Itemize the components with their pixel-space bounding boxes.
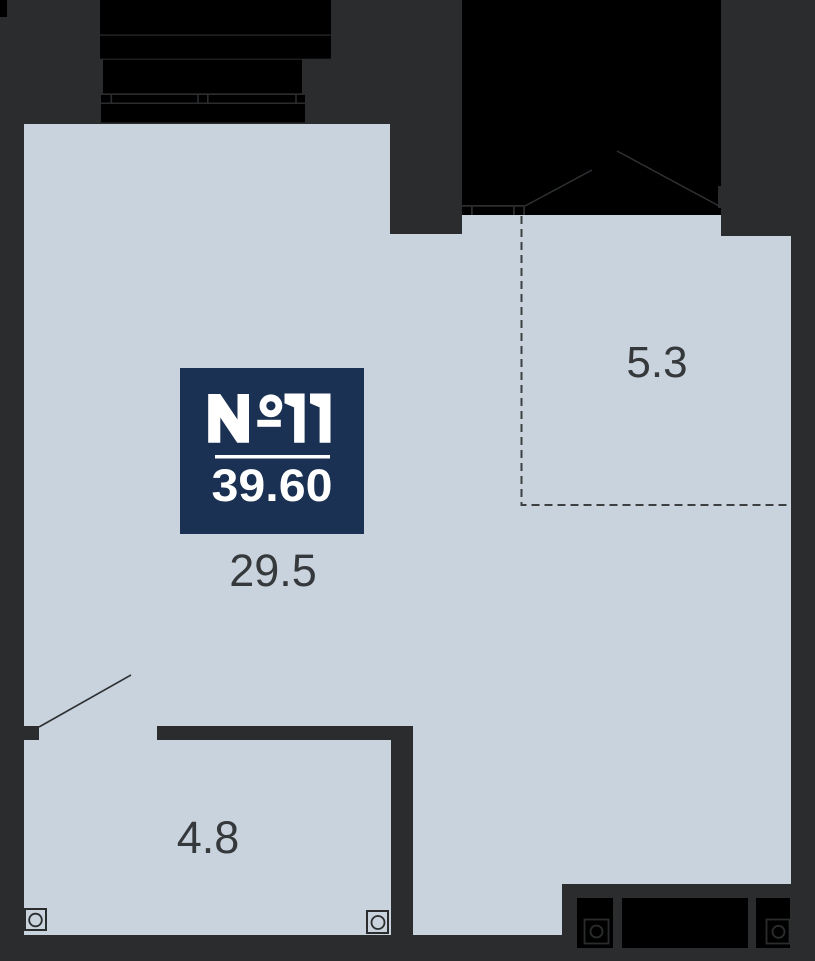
svg-text:5.3: 5.3 xyxy=(626,338,687,387)
svg-text:39.60: 39.60 xyxy=(212,460,333,511)
svg-text:4.8: 4.8 xyxy=(177,812,240,863)
svg-text:29.5: 29.5 xyxy=(229,545,317,596)
